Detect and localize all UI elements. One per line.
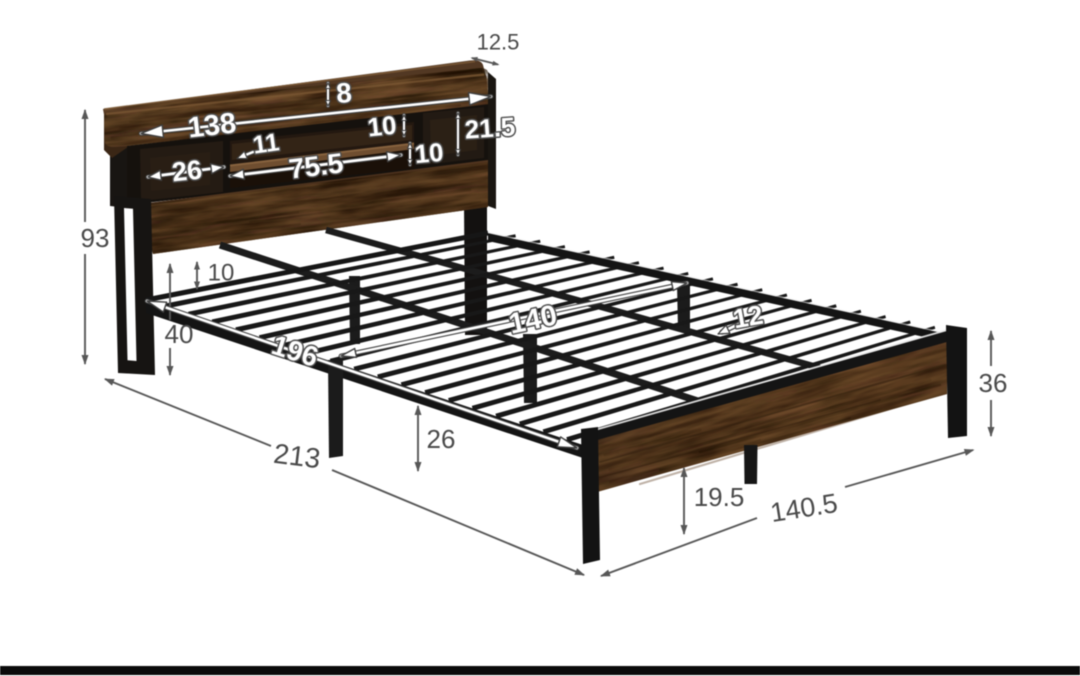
svg-text:12: 12 — [731, 300, 766, 335]
svg-text:213: 213 — [272, 438, 322, 474]
svg-text:10: 10 — [366, 110, 398, 143]
svg-text:19.5: 19.5 — [694, 482, 745, 512]
svg-text:10: 10 — [413, 137, 444, 169]
svg-text:12.5: 12.5 — [477, 30, 520, 55]
svg-text:36: 36 — [979, 368, 1008, 398]
svg-text:93: 93 — [81, 223, 110, 253]
svg-text:10: 10 — [208, 260, 235, 287]
svg-text:11: 11 — [251, 128, 281, 159]
svg-text:26: 26 — [427, 424, 456, 454]
svg-text:26: 26 — [170, 155, 203, 188]
svg-text:138: 138 — [186, 107, 238, 144]
svg-text:40: 40 — [165, 319, 194, 349]
svg-text:8: 8 — [335, 77, 353, 109]
svg-text:21.5: 21.5 — [464, 111, 517, 144]
svg-text:75.5: 75.5 — [287, 147, 345, 184]
